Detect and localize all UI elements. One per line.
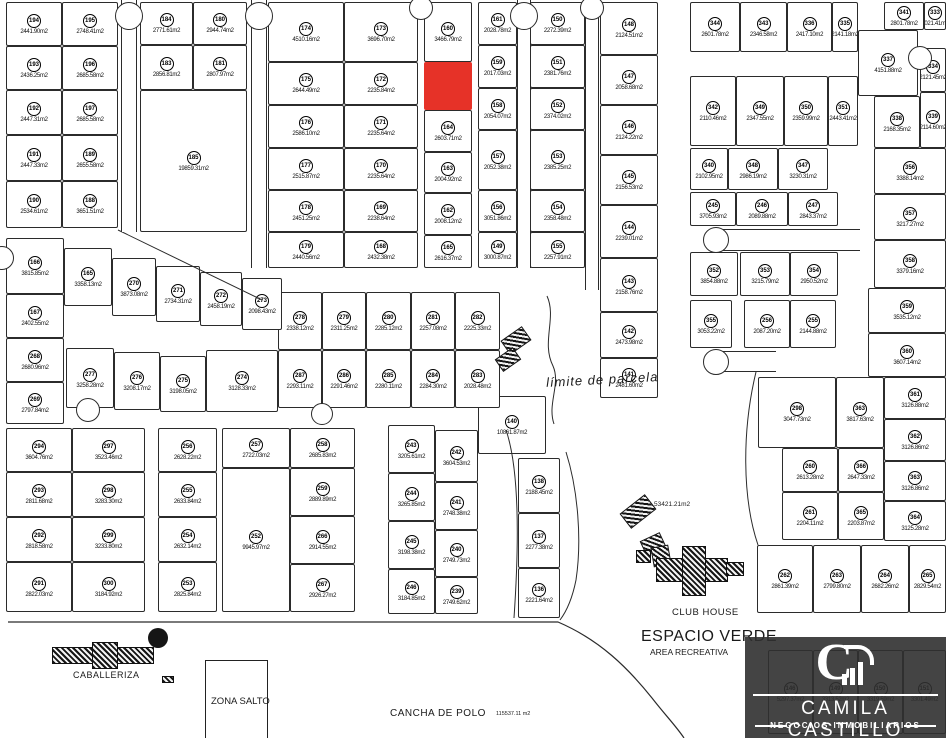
lot-271: 2712734.31m2 [156,266,200,322]
lot-178: 1782451.25m2 [268,190,344,232]
lot-242: 2423604.53m2 [435,430,478,482]
lot-261: 2612204.11m2 [782,492,838,540]
lot-number-badge: 272 [214,289,228,303]
lot-number-badge: 281 [426,311,440,325]
lot-area-label: 2239.01m2 [615,236,642,242]
lot-299: 2993233.80m2 [72,517,145,562]
lot-area-label: 2235.84m2 [367,88,394,94]
lot-number-badge: 300 [102,577,116,591]
lot-number-badge: 140 [505,415,519,429]
lot-177: 1772515.87m2 [268,148,344,190]
lot-area-label: 3126.88m2 [901,403,928,409]
lot-area-label: 3205.61m2 [398,454,425,460]
lot-number-badge: 344 [708,17,722,31]
lot-278: 2782338.12m2 [278,292,322,350]
lot-298: 2983283.30m2 [72,472,145,517]
lot-350: 3502359.99m2 [784,76,828,146]
lot-area-label: 2188.45m2 [525,490,552,496]
lot-number-badge: 166 [28,256,42,270]
lot-333: 3332021.41m2 [924,2,946,30]
lot-number-badge: 269 [28,393,42,407]
lot-298: 2983047.73m2 [758,377,836,448]
lot-area-label: 2647.33m2 [847,475,874,481]
lot-191: 1912447.33m2 [6,135,62,181]
lot-area-label: 3198.38m2 [398,550,425,556]
lot-196: 1962685.58m2 [62,46,118,90]
lot-360: 3603607.14m2 [868,333,946,377]
lot-176: 1762586.10m2 [268,105,344,148]
lot-153: 1532385.25m2 [530,130,585,190]
lot-274: 2743128.33m2 [206,350,278,412]
club-house-label: CLUB HOUSE [672,607,739,618]
lot-number-badge: 256 [760,314,774,328]
lot-183: 1832856.81m2 [140,45,193,90]
lot-number-badge: 264 [878,569,892,583]
lot-270: 2703873.08m2 [112,258,156,316]
cancha-area-value: 115537.11 m2 [496,711,530,717]
lot-356: 3563388.14m2 [874,148,946,194]
lot-number-badge: 153 [551,150,565,164]
lot-342: 3422110.46m2 [690,76,736,146]
lot-area-label: 2225.33m2 [464,326,491,332]
lot-166: 1663815.85m2 [6,238,64,294]
lot-188: 1883651.51m2 [62,181,118,228]
lot-344: 3442601.78m2 [690,2,740,52]
building-icon [500,326,531,355]
lot-286: 2862291.46m2 [322,350,366,408]
lot-area-label: 2601.78m2 [701,32,728,38]
lot-area-label: 3184.92m2 [95,592,122,598]
lot-area-label: 2944.74m2 [206,28,233,34]
lot-175: 1752644.49m2 [268,62,344,105]
lot-number-badge: 194 [27,14,41,28]
lot-number-badge: 273 [255,294,269,308]
lot-area-label: 3604.76m2 [25,455,52,461]
lot-number-badge: 195 [83,14,97,28]
lot-361: 3613126.88m2 [884,377,946,419]
lot-area-label: 2603.71m2 [434,136,461,142]
lot-number-badge: 173 [374,22,388,36]
lot-area-label: 3651.51m2 [76,209,103,215]
lot-number-badge: 335 [838,17,852,31]
lot-number-badge: 282 [471,311,485,325]
lot-area-label: 2861.39m2 [771,584,798,590]
lot-292: 2922818.58m2 [6,517,72,562]
lot-area-label: 2613.28m2 [796,475,823,481]
lot-336: 3362417.10m2 [787,2,832,52]
lot-area-label: 3258.28m2 [76,383,103,389]
lot-area-label: 2986.19m2 [739,174,766,180]
lot-area-label: 2436.25m2 [20,73,47,79]
lot-area-label: 3000.87m2 [484,255,511,261]
lot-341: 3412801.78m2 [884,2,924,30]
lot-number-badge: 189 [83,148,97,162]
lot-number-badge: 358 [903,254,917,268]
subdivision-map: 1942441.90m21952748.41m21932436.25m21962… [0,0,946,738]
cul-de-sac-bulb [245,2,273,30]
lot-area-label: 2458.19m2 [207,304,234,310]
lot-area-label: 3535.12m2 [893,315,920,321]
lot-area-label: 2534.61m2 [20,209,47,215]
lot-145: 1452156.53m2 [600,155,658,205]
lot-area-label: 2141.18m2 [832,32,858,38]
lot-245: 2453198.38m2 [388,521,435,569]
lot-256: 2562087.20m2 [744,300,790,348]
lot-area-label: 2017.03m2 [484,71,511,77]
lot-273: 2732098.43m2 [242,278,282,330]
lot-number-badge: 357 [903,207,917,221]
lot-247: 2472843.37m2 [788,192,838,226]
lot-area-label: 2734.31m2 [164,299,191,305]
lot-area-label: 2311.25m2 [331,326,358,332]
lot-area-label: 2586.10m2 [292,131,319,137]
lot-number-badge: 348 [746,159,760,173]
lot-number-badge: 165 [81,267,95,281]
lot-239: 2392749.62m2 [435,577,478,614]
lot-number-badge: 262 [778,569,792,583]
street [517,0,531,268]
lot-number-badge: 361 [908,388,922,402]
lot-150: 1502272.39m2 [530,2,585,45]
lot-number-badge: 183 [160,57,174,71]
lot-area-label: 2515.87m2 [292,174,319,180]
lot-number-badge: 352 [707,264,721,278]
cul-de-sac-bulb [908,46,932,70]
cul-de-sac-bulb [115,2,143,30]
lot-area-label: 2822.03m2 [25,592,52,598]
lot-area-label: 2257.08m2 [419,326,446,332]
lot-number-badge: 151 [551,56,565,70]
cul-de-sac-bulb [510,2,538,30]
lot-338: 3382168.35m2 [874,96,920,148]
lot-335: 3352141.18m2 [832,2,858,52]
lot-number-badge: 280 [382,311,396,325]
lot-195: 1952748.41m2 [62,2,118,46]
lot-area-label: 2359.99m2 [792,116,819,122]
lot-number-badge: 170 [374,159,388,173]
lot-189: 1892655.58m2 [62,135,118,181]
lot-area-label: 2926.27m2 [309,593,336,599]
lot-area-label: 2102.95m2 [695,174,722,180]
lot-area-label: 2235.64m2 [367,131,394,137]
lot-number-badge: 146 [622,120,636,134]
lot-number-badge: 298 [790,402,804,416]
lot-number-badge: 157 [491,150,505,164]
lot-area-label: 3208.17m2 [123,386,150,392]
lot-number-badge: 252 [249,530,263,544]
lot-340: 3402102.95m2 [690,148,728,190]
lot-number-badge: 333 [928,6,942,20]
lot-number-badge: 364 [908,511,922,525]
lot-number-badge: 159 [491,56,505,70]
lot-number-badge: 160 [441,22,455,36]
lot-284: 2842284.30m2 [411,350,455,408]
lot-number-badge: 246 [405,581,419,595]
lot-number-badge: 353 [758,264,772,278]
lot-area-label: 2089.88m2 [748,214,775,220]
lot-number-badge: 265 [921,569,935,583]
lot-number-badge: 291 [32,577,46,591]
lot-area-label: 3126.86m2 [901,486,928,492]
lot-area-label: 3265.85m2 [398,502,425,508]
lot-number-badge: 279 [337,311,351,325]
lot-number-badge: 259 [316,482,330,496]
lot-area-label: 2633.84m2 [174,499,201,505]
lot-number-badge: 292 [32,529,46,543]
lot-number-badge: 267 [316,578,330,592]
lot-293: 2932811.68m2 [6,472,72,517]
lot-area-label: 2644.49m2 [292,88,319,94]
lot-number-badge: 351 [836,101,850,115]
lot-area-label: 2825.84m2 [174,592,201,598]
lot-151: 1512381.76m2 [530,45,585,88]
lot-339: 3392114.60m2 [920,92,946,148]
lot-258: 2582685.83m2 [290,428,355,468]
lot-number-badge: 239 [450,585,464,599]
lot-number-badge: 274 [235,371,249,385]
lot-363: 3633817.63m2 [836,377,884,448]
building-icon [162,676,174,683]
lot-number-badge: 270 [127,277,141,291]
lot-347: 3473230.31m2 [778,148,828,190]
lot-number-badge: 152 [551,99,565,113]
lot-number-badge: 360 [900,345,914,359]
lot-area-label: 2797.84m2 [21,408,48,414]
lot-282: 2822225.33m2 [455,292,500,350]
lot-264: 2642682.26m2 [861,545,909,613]
cul-de-sac-bulb [703,227,729,253]
lot-area-label: 3854.88m2 [700,279,727,285]
lot-area-label: 2346.58m2 [750,32,777,38]
lot-291: 2912822.03m2 [6,562,72,612]
brand-monogram-icon: C [816,639,876,697]
lot-165: 1652616.37m2 [424,235,472,268]
lot-number-badge: 278 [293,311,307,325]
lot-area-label: 2443.41m2 [829,116,856,122]
lot-area-label: 2381.76m2 [544,71,571,77]
lot-area-label: 2114.60m2 [920,125,946,131]
lot-number-badge: 177 [299,159,313,173]
lot-area-label: 2257.91m2 [544,255,571,261]
lot-area-label: 3523.46m2 [95,455,122,461]
lot-number-badge: 255 [181,484,195,498]
lot-area-label: 2889.89m2 [309,497,336,503]
lot-number-badge: 337 [881,53,895,67]
lot-number-badge: 181 [213,57,227,71]
lot-number-badge: 172 [374,73,388,87]
lot-163: 1632004.92m2 [424,152,472,193]
lot-349: 3492347.55m2 [736,76,784,146]
lot-174: 1744510.16m2 [268,2,344,62]
lot-area-label: 2204.11m2 [797,521,824,527]
lot-number-badge: 349 [753,101,767,115]
lot-number-badge: 276 [130,371,144,385]
lot-area-label: 3128.33m2 [228,386,255,392]
lot-170: 1702235.64m2 [344,148,418,190]
lot-area-label: 3047.73m2 [783,417,810,423]
lot-number-badge: 266 [316,530,330,544]
lot-number-badge: 196 [83,58,97,72]
lot-number-badge: 293 [32,484,46,498]
lot-area-label: 2432.38m2 [367,255,394,261]
lot-area-label: 2124.22m2 [615,135,642,141]
lot-number-badge: 297 [102,440,116,454]
lot-area-label: 2347.55m2 [746,116,773,122]
lot-area-label: 2168.35m2 [883,127,910,133]
lot-158: 1582054.07m2 [478,88,517,130]
lot-area-label: 3053.22m2 [697,329,724,335]
cul-de-sac-bulb [311,403,333,425]
lot-number-badge: 263 [830,569,844,583]
cancha-de-polo-label: CANCHA DE POLO [390,708,486,719]
lot-area-label: 3705.93m2 [699,214,726,220]
lot-area-label: 3198.05m2 [169,389,196,395]
lot-353: 3533215.79m2 [740,252,790,296]
lot-area-label: 3817.63m2 [846,417,873,423]
lot-area-label: 2685.83m2 [309,453,336,459]
lot-number-badge: 354 [807,264,821,278]
lot-number-badge: 245 [405,535,419,549]
lot-300: 3003184.92m2 [72,562,145,612]
lot-area-label: 2632.14m2 [174,544,201,550]
lot-173: 1733696.70m2 [344,2,418,62]
lot-area-label: 3215.79m2 [751,279,778,285]
lot-number-badge: 136 [532,583,546,597]
lot-number-badge: 180 [213,13,227,27]
lot-area-label: 3466.79m2 [434,37,461,43]
lot-area-label: 4510.16m2 [292,37,319,43]
monogram-arc-icon [844,645,874,665]
lot-area-label: 2221.64m2 [525,598,552,604]
lot-190: 1902534.61m2 [6,181,62,228]
lot-area-label: 2098.43m2 [248,309,275,315]
lot-143: 1432158.76m2 [600,258,658,312]
lot-179: 1792440.56m2 [268,232,344,268]
lot-348: 3482986.19m2 [728,148,778,190]
lot-number-badge: 283 [471,369,485,383]
lot-number-badge: 284 [426,369,440,383]
cul-de-sac-bulb [703,349,729,375]
highlighted-lot-red [424,62,472,110]
lot-area-label: 2004.92m2 [434,177,461,183]
lot-number-badge: 256 [181,440,195,454]
lot-number-badge: 347 [796,159,810,173]
lot-343: 3432346.58m2 [740,2,787,52]
lot-138: 1382188.45m2 [518,458,560,513]
lot-area-label: 2203.87m2 [847,521,874,527]
lot-number-badge: 253 [181,577,195,591]
lot-137: 1372277.38m2 [518,513,560,568]
lot-number-badge: 343 [757,17,771,31]
lot-number-badge: 149 [491,240,505,254]
lot-number-badge: 359 [900,300,914,314]
lot-number-badge: 145 [622,170,636,184]
lot-number-badge: 341 [897,6,911,20]
lot-266: 2662914.55m2 [290,516,355,564]
lot-number-badge: 161 [491,13,505,27]
lot-area-label: 2818.58m2 [25,544,52,550]
lot-number-badge: 171 [374,116,388,130]
lot-number-badge: 242 [450,446,464,460]
lot-159: 1592017.03m2 [478,45,517,88]
lot-193: 1932436.25m2 [6,46,62,90]
building-icon [620,494,657,529]
lot-area-label: 2028.48m2 [464,384,491,390]
lot-244: 2443265.85m2 [388,473,435,521]
lot-area-label: 3125.28m2 [901,526,928,532]
lot-area-label: 2293.11m2 [287,384,314,390]
lot-area-label: 2284.30m2 [419,384,446,390]
lot-area-label: 2402.55m2 [21,321,48,327]
lot-area-label: 2829.54m2 [914,584,941,590]
lot-number-badge: 169 [374,201,388,215]
lot-area-label: 3873.08m2 [120,292,147,298]
lot-number-badge: 164 [441,121,455,135]
lot-area-label: 9945.97m2 [242,545,269,551]
lot-number-badge: 336 [803,17,817,31]
lot-area-label: 2008.12m2 [434,219,461,225]
lot-area-label: 3283.30m2 [95,499,122,505]
lot-192: 1922447.31m2 [6,90,62,135]
lot-351: 3512443.41m2 [828,76,858,146]
lot-number-badge: 144 [622,221,636,235]
monogram-bar-icon [858,662,863,685]
lot-171: 1712235.64m2 [344,105,418,148]
building-icon [682,546,706,596]
lot-number-badge: 240 [450,543,464,557]
lot-number-badge: 162 [441,204,455,218]
lot-254: 2542632.14m2 [158,517,217,562]
lot-area-label: 2054.07m2 [484,114,511,120]
lot-number-badge: 148 [622,18,636,32]
lot-area-label: 2158.76m2 [615,290,642,296]
lot-area-label: 2748.38m2 [443,511,470,517]
lot-number-badge: 366 [854,460,868,474]
lot-262: 2622861.39m2 [757,545,813,613]
lot-352: 3523854.88m2 [690,252,738,296]
lot-area-label: 3230.31m2 [789,174,816,180]
lot-246: 2463184.85m2 [388,569,435,614]
lot-185: 18519859.31m2 [140,90,247,232]
lot-area-label: 2385.25m2 [544,165,571,171]
lot-287: 2872293.11m2 [278,350,322,408]
building-icon [92,642,118,669]
lot-area-label: 2843.37m2 [799,214,826,220]
lot-area-label: 2052.38m2 [484,165,511,171]
lot-area-label: 2655.58m2 [76,163,103,169]
lot-area-label: 2028.78m2 [484,28,511,34]
lot-number-badge: 258 [316,438,330,452]
lot-154: 1542358.48m2 [530,190,585,232]
lot-152: 1522374.02m2 [530,88,585,130]
lot-number-badge: 150 [551,13,565,27]
lot-240: 2402749.73m2 [435,530,478,577]
lot-283: 2832028.48m2 [455,350,500,408]
lot-272: 2722458.19m2 [200,272,242,326]
lot-297: 2973523.46m2 [72,428,145,472]
lot-area-label: 2156.53m2 [615,185,642,191]
lot-243: 2433205.61m2 [388,425,435,473]
lot-area-label: 2110.46m2 [700,116,727,122]
lot-area-label: 2440.56m2 [292,255,319,261]
lot-area-label: 3358.13m2 [74,282,101,288]
lot-area-label: 2121.45m2 [920,75,946,81]
lot-number-badge: 143 [622,275,636,289]
lot-number-badge: 260 [803,460,817,474]
lot-area-label: 2280.11m2 [375,384,402,390]
lot-285: 2852280.11m2 [366,350,411,408]
lot-252: 2529945.97m2 [222,468,290,612]
